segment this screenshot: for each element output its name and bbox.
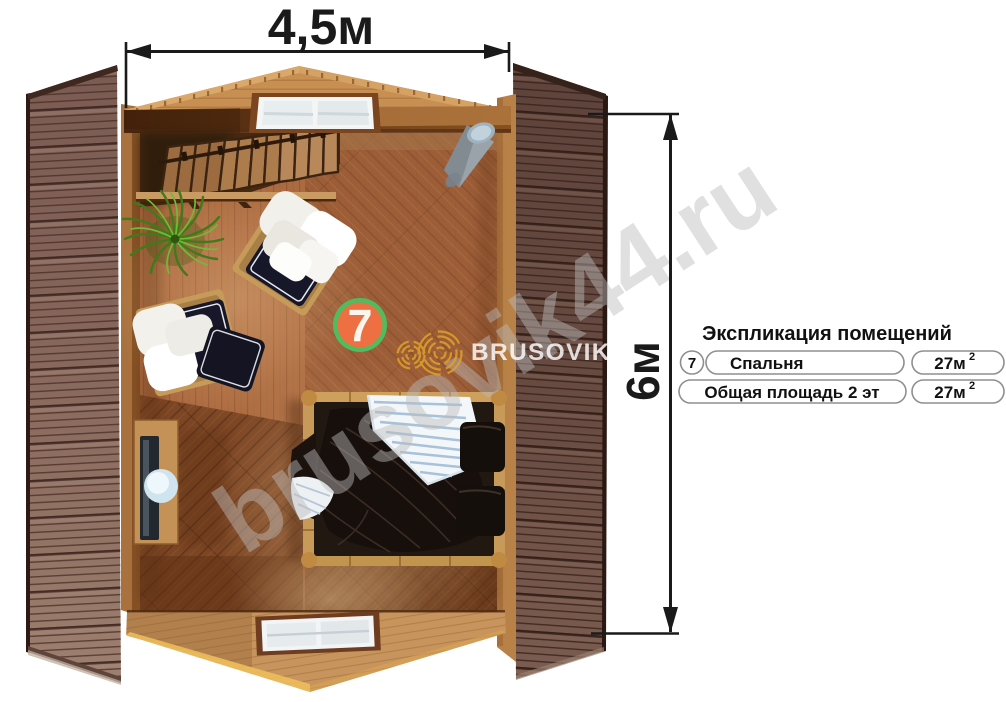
svg-text:7: 7 (688, 355, 696, 372)
svg-text:4,5м: 4,5м (268, 0, 375, 55)
svg-text:2: 2 (969, 380, 975, 392)
svg-text:27м: 27м (934, 383, 966, 402)
svg-text:Общая площадь 2 эт: Общая площадь 2 эт (704, 383, 879, 402)
svg-text:BRUSOVIK: BRUSOVIK (471, 339, 611, 366)
svg-text:Спальня: Спальня (730, 354, 803, 373)
svg-text:2: 2 (969, 351, 975, 363)
svg-text:Экспликация помещений: Экспликация помещений (702, 323, 952, 345)
svg-text:27м: 27м (934, 354, 966, 373)
svg-text:7: 7 (347, 300, 372, 351)
svg-text:6м: 6м (617, 341, 669, 401)
